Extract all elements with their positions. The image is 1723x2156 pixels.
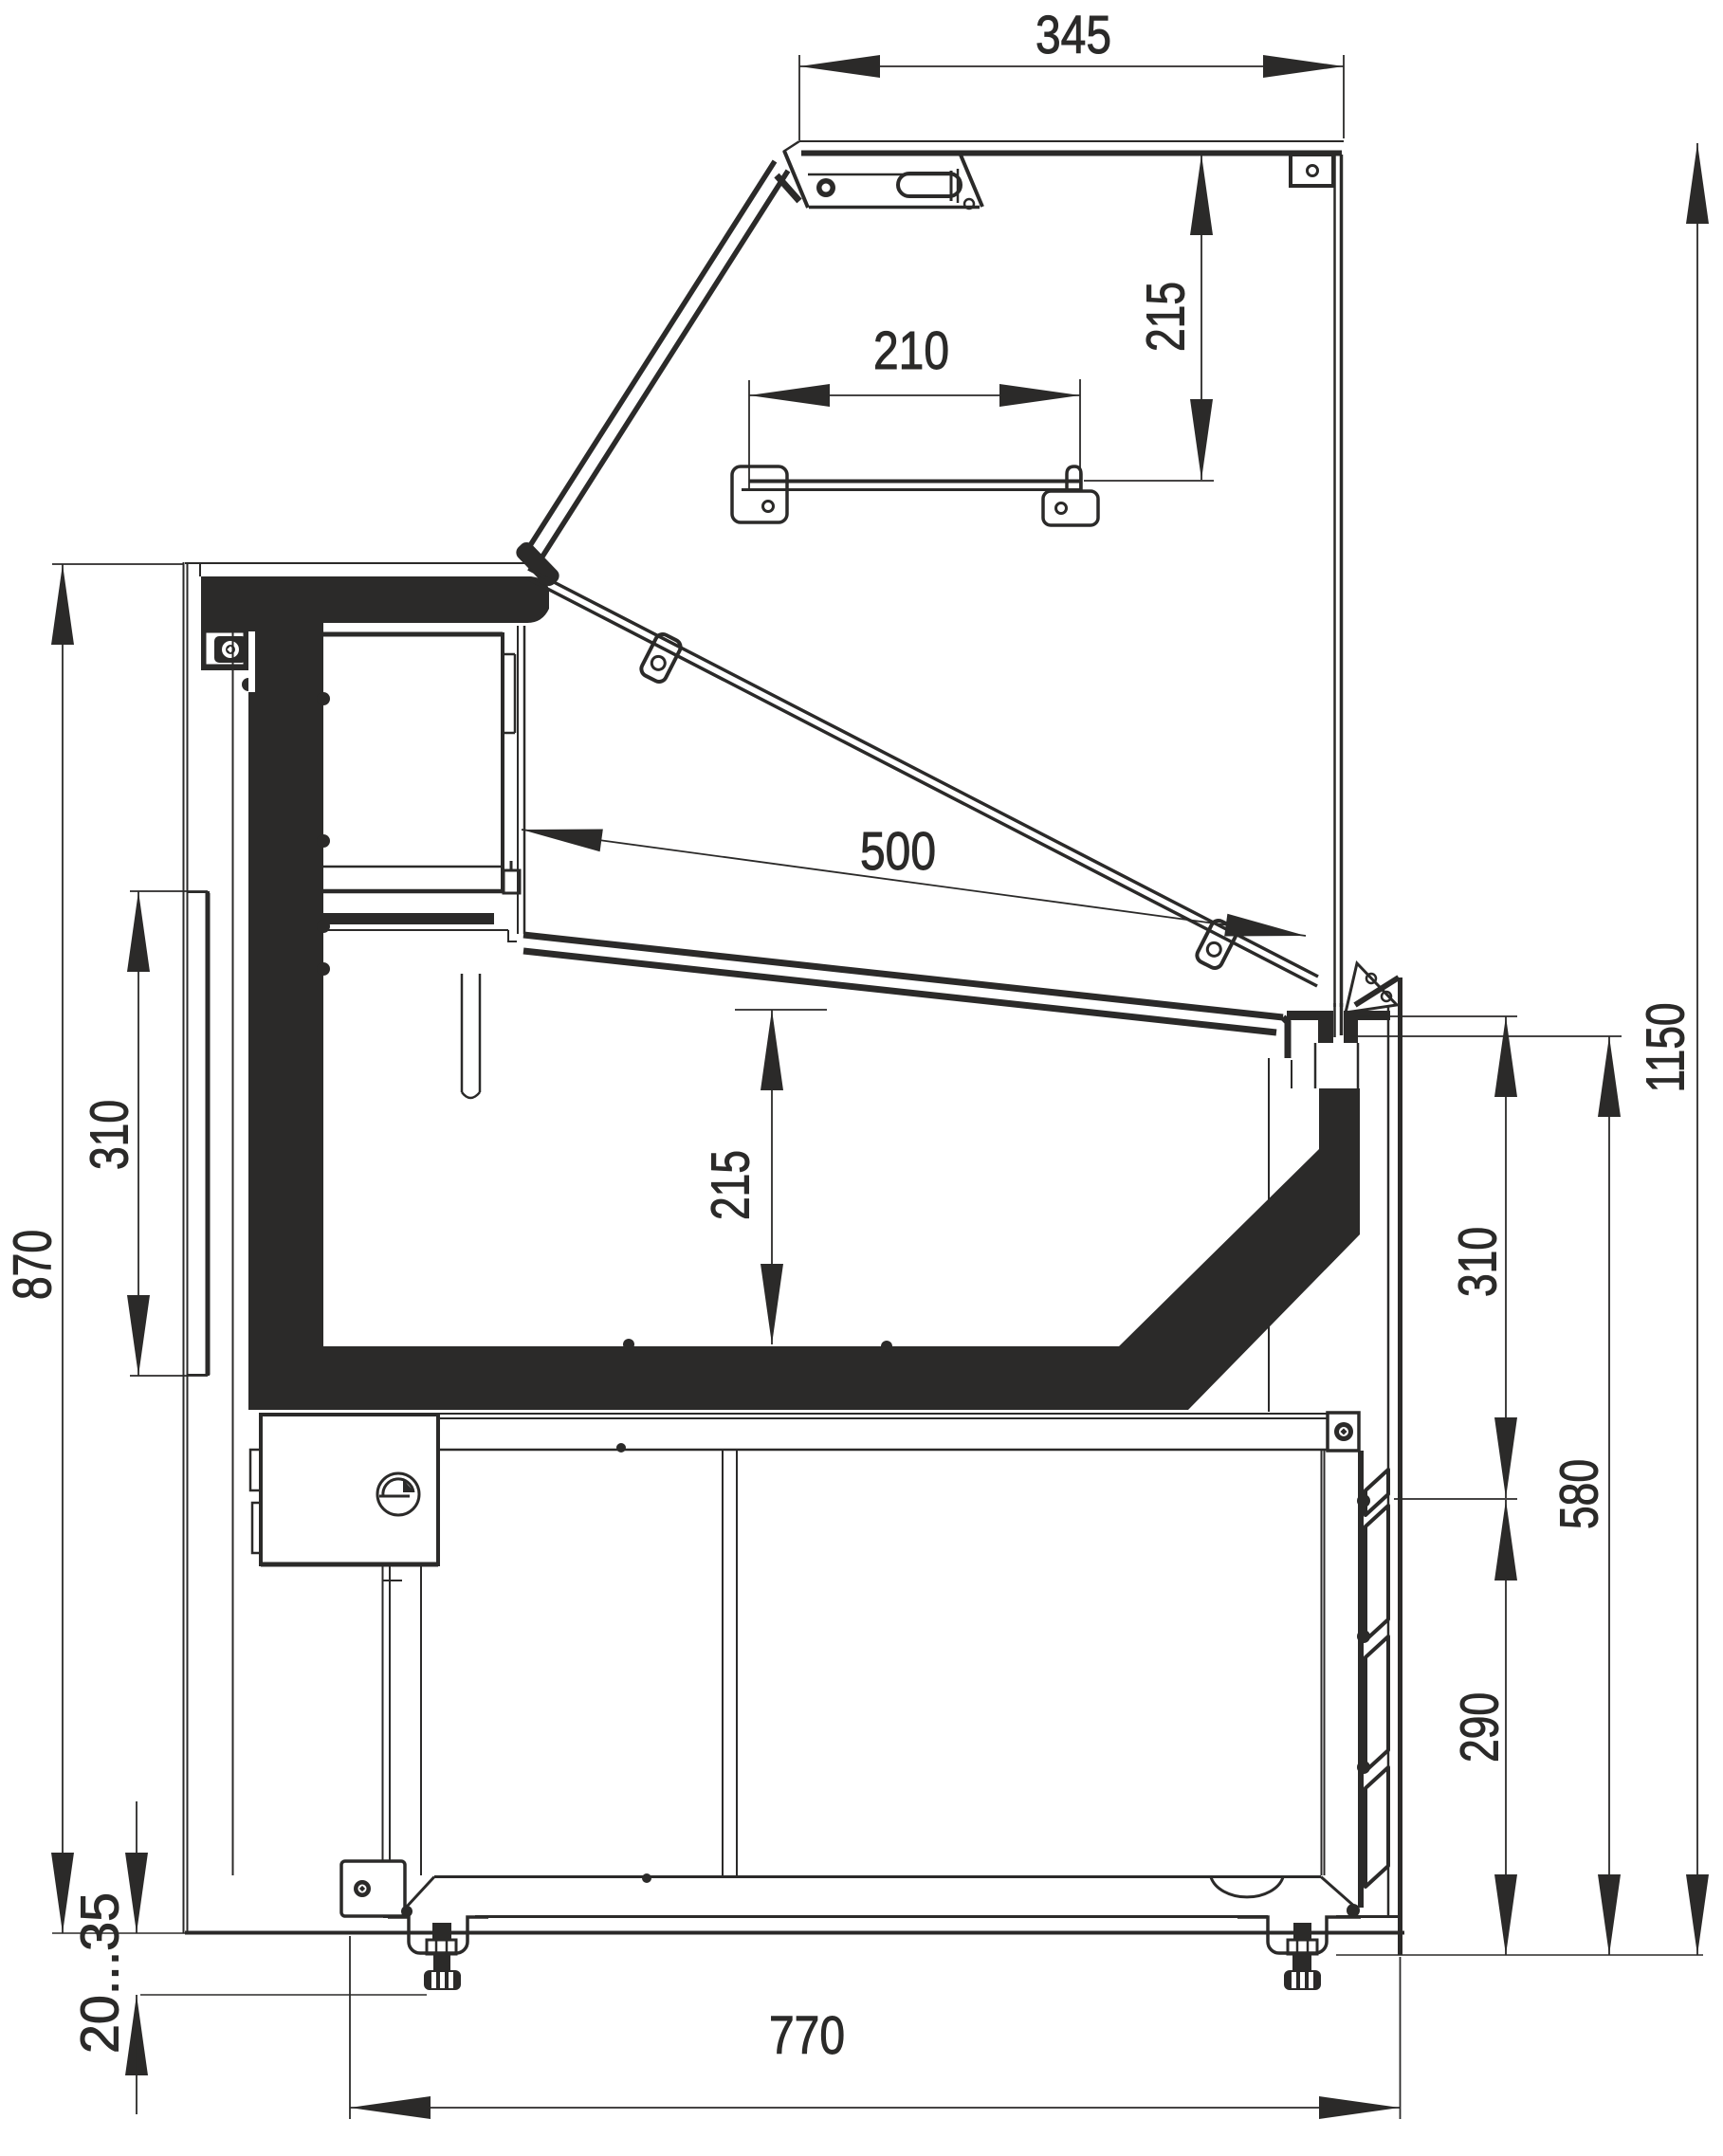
svg-text:500: 500 [860, 821, 936, 882]
svg-text:310: 310 [1448, 1227, 1509, 1297]
svg-text:210: 210 [873, 320, 949, 381]
svg-text:215: 215 [1136, 282, 1197, 352]
svg-text:215: 215 [701, 1150, 761, 1220]
svg-text:580: 580 [1549, 1459, 1610, 1529]
svg-text:1150: 1150 [1636, 1003, 1696, 1093]
svg-text:290: 290 [1450, 1692, 1511, 1763]
svg-text:345: 345 [1036, 5, 1111, 65]
svg-text:20...35: 20...35 [70, 1892, 131, 2054]
svg-text:770: 770 [769, 2005, 845, 2066]
svg-text:870: 870 [3, 1230, 64, 1300]
svg-text:310: 310 [80, 1100, 140, 1170]
